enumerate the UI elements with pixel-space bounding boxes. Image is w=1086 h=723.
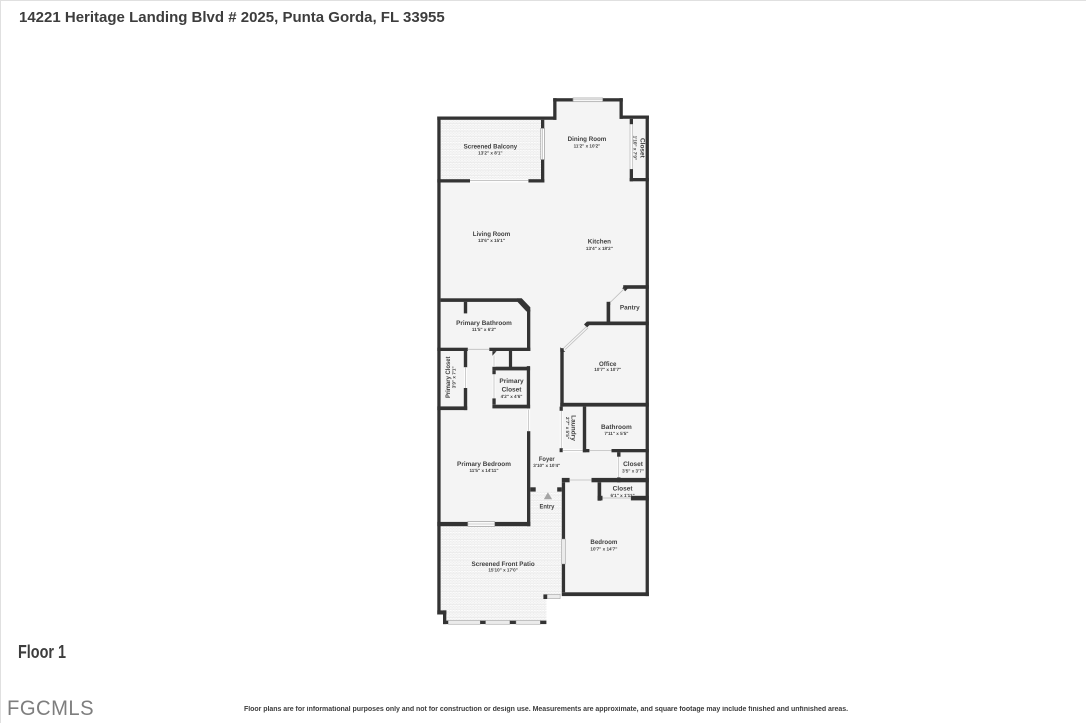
svg-text:Closet: Closet [502, 387, 523, 394]
svg-text:Primary: Primary [499, 378, 524, 385]
svg-text:13'4" x 18'2": 13'4" x 18'2" [586, 246, 613, 251]
svg-text:Kitchen: Kitchen [588, 239, 611, 246]
svg-text:Primary Bathroom: Primary Bathroom [456, 320, 512, 327]
svg-text:3'5" x 3'7": 3'5" x 3'7" [622, 469, 644, 474]
svg-text:Closet: Closet [613, 486, 634, 493]
svg-text:6'1" x 1'11": 6'1" x 1'11" [611, 493, 635, 498]
svg-text:Foyer: Foyer [539, 456, 555, 463]
svg-text:Closet: Closet [623, 461, 644, 468]
svg-text:15'10" x 17'0": 15'10" x 17'0" [488, 568, 518, 573]
svg-text:4'2" x 4'6": 4'2" x 4'6" [501, 394, 523, 399]
svg-text:1'10" x 7'9": 1'10" x 7'9" [632, 136, 637, 160]
svg-text:3'9" x 7'1": 3'9" x 7'1" [451, 366, 456, 388]
svg-text:2'7" x 5'5": 2'7" x 5'5" [565, 417, 570, 439]
svg-text:Dining Room: Dining Room [568, 136, 607, 143]
svg-text:Entry: Entry [539, 504, 554, 511]
svg-text:Screened Balcony: Screened Balcony [464, 143, 518, 150]
svg-text:11'5" x 14'11": 11'5" x 14'11" [469, 468, 498, 473]
svg-text:Living Room: Living Room [473, 231, 511, 238]
svg-text:11'2" x 10'2": 11'2" x 10'2" [574, 143, 601, 148]
svg-text:13'2" x 8'1": 13'2" x 8'1" [478, 151, 502, 156]
svg-text:10'7" x 14'7": 10'7" x 14'7" [590, 546, 617, 551]
svg-text:3'10" x 10'4": 3'10" x 10'4" [533, 463, 560, 468]
svg-text:10'7" x 10'7": 10'7" x 10'7" [594, 367, 621, 372]
svg-text:11'5" x 6'2": 11'5" x 6'2" [472, 327, 496, 332]
svg-text:Bedroom: Bedroom [590, 539, 617, 546]
svg-text:13'6" x 15'1": 13'6" x 15'1" [478, 238, 505, 243]
svg-text:Closet: Closet [638, 138, 645, 159]
svg-text:7'11" x 5'5": 7'11" x 5'5" [604, 431, 628, 436]
svg-text:Pantry: Pantry [620, 305, 640, 312]
svg-text:Primary Bedroom: Primary Bedroom [457, 461, 511, 468]
